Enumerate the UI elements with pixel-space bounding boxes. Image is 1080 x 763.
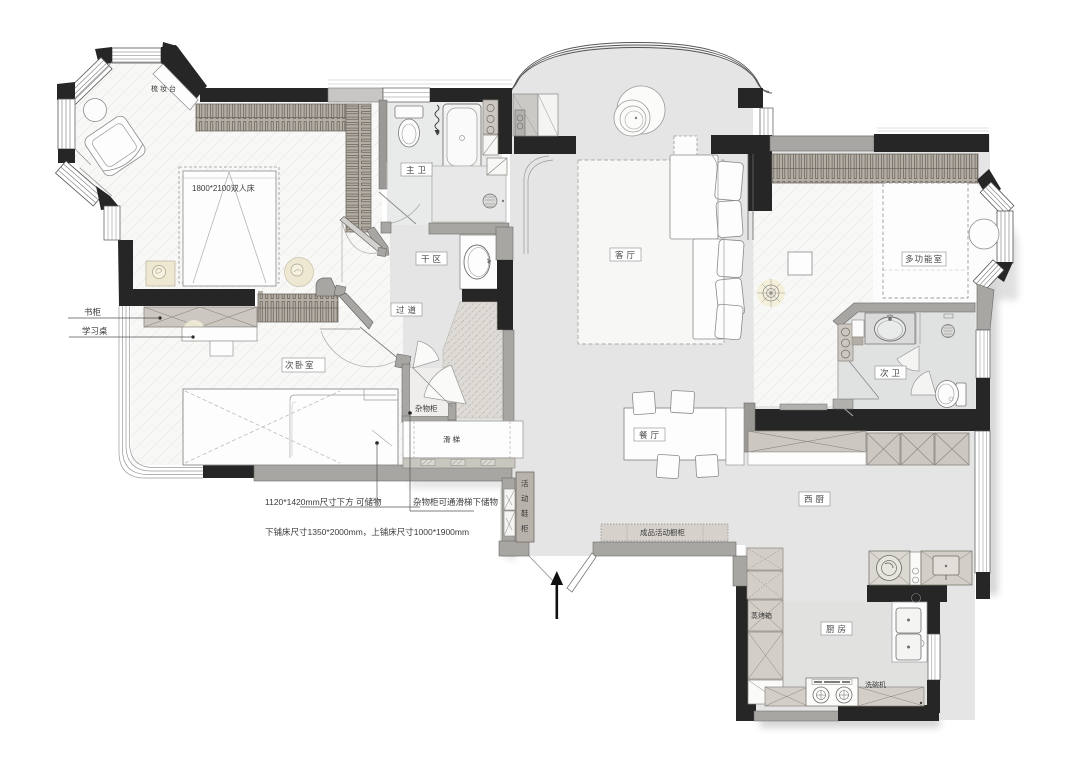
svg-text:洗碗机: 洗碗机	[865, 680, 886, 689]
svg-text:客厅: 客厅	[615, 250, 638, 260]
svg-text:动: 动	[521, 493, 529, 503]
svg-text:过道: 过道	[396, 305, 419, 315]
svg-text:多功能室: 多功能室	[905, 254, 943, 264]
svg-text:1800*2100双人床: 1800*2100双人床	[192, 183, 255, 193]
svg-text:学习桌: 学习桌	[82, 326, 108, 336]
svg-text:餐厅: 餐厅	[639, 430, 662, 440]
svg-text:梳妆台: 梳妆台	[151, 84, 178, 93]
svg-text:书柜: 书柜	[84, 307, 102, 317]
svg-text:1120*1420mm尺寸下方 可储物: 1120*1420mm尺寸下方 可储物	[265, 497, 382, 507]
svg-text:杂物柜可通滑梯下储物: 杂物柜可通滑梯下储物	[413, 497, 499, 507]
svg-text:下铺床尺寸1350*2000mm，上铺床尺寸1000*190: 下铺床尺寸1350*2000mm，上铺床尺寸1000*1900mm	[265, 527, 469, 537]
svg-text:次卧室: 次卧室	[285, 360, 315, 370]
svg-text:干区: 干区	[421, 254, 444, 264]
svg-text:杂物柜: 杂物柜	[415, 403, 438, 413]
svg-text:鞋: 鞋	[521, 508, 529, 518]
svg-text:柜: 柜	[521, 523, 529, 533]
svg-text:厨房: 厨房	[826, 624, 849, 634]
svg-text:次卫: 次卫	[880, 368, 903, 378]
svg-text:蒸烤箱: 蒸烤箱	[751, 611, 772, 620]
svg-text:主卫: 主卫	[406, 165, 429, 175]
svg-text:活: 活	[521, 478, 529, 488]
svg-text:西厨: 西厨	[804, 494, 827, 504]
svg-text:滑梯: 滑梯	[443, 434, 462, 444]
svg-text:成品活动橱柜: 成品活动橱柜	[640, 527, 685, 537]
